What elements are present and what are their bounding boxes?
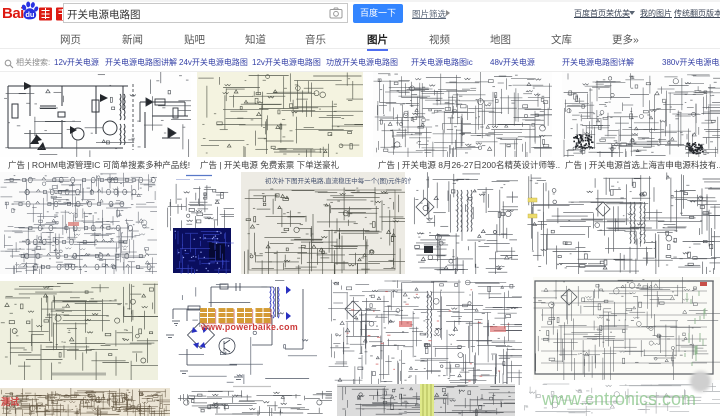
svg-text:du: du [25, 10, 35, 19]
svg-text:www.powerbaike.com: www.powerbaike.com [200, 322, 298, 332]
